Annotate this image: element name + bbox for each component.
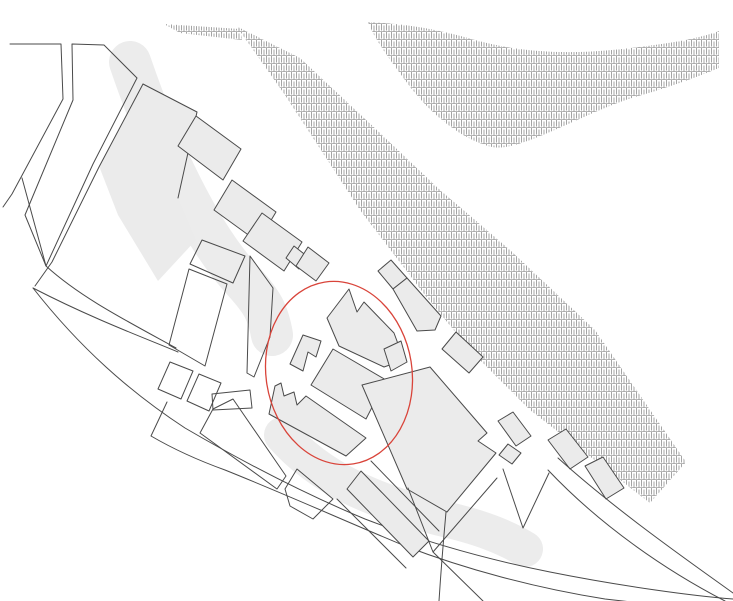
site-plan-svg xyxy=(0,0,733,601)
site-plan-figure xyxy=(0,0,733,601)
